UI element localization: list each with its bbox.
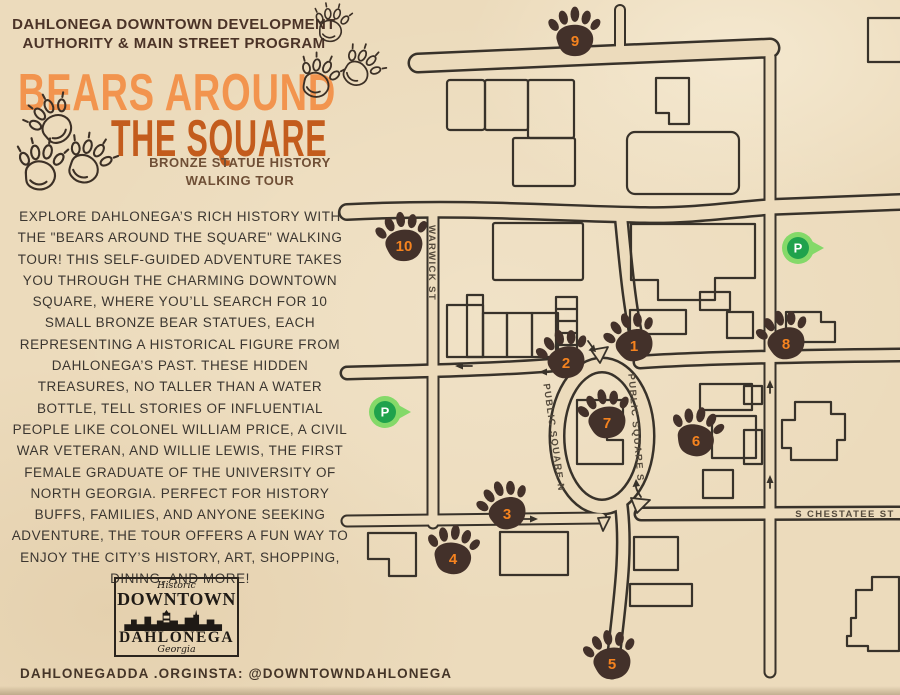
bear-marker-number: 3	[503, 506, 511, 523]
poster-page: DAHLONEGA DOWNTOWN DEVELOPMENT AUTHORITY…	[0, 0, 900, 695]
paw-print-decoration-icon	[290, 46, 347, 104]
bear-paw-marker-5: 5	[579, 626, 642, 683]
parking-pin-letter: P	[381, 405, 390, 420]
paw-print-decoration-icon	[308, 0, 353, 45]
tour-map: WARWICK STPUBLIC SQUARE NPUBLIC SQUARE S…	[0, 0, 900, 695]
bear-marker-number: 8	[782, 336, 790, 353]
bear-marker-number: 7	[603, 415, 611, 432]
bear-marker-number: 2	[562, 355, 570, 372]
bear-paw-icon	[579, 626, 642, 683]
bear-marker-number: 1	[630, 338, 638, 355]
street-label: S CHESTATEE ST	[795, 509, 894, 520]
bear-marker-number: 6	[692, 433, 700, 450]
parking-pin-2: P	[782, 232, 824, 264]
bear-paw-marker-3: 3	[469, 473, 538, 538]
bear-marker-number: 10	[396, 238, 413, 255]
parking-pin-letter: P	[794, 241, 803, 256]
paw-print-decorations	[11, 0, 390, 193]
bear-marker-number: 5	[608, 656, 616, 673]
bear-paw-marker-4: 4	[421, 521, 484, 578]
bear-paw-icon	[421, 521, 484, 578]
paw-print-decoration-icon	[332, 36, 391, 95]
parking-pin-1: P	[369, 396, 411, 428]
bear-marker-number: 4	[449, 551, 458, 568]
bear-marker-number: 9	[571, 33, 579, 50]
street-label: WARWICK ST	[426, 225, 437, 301]
